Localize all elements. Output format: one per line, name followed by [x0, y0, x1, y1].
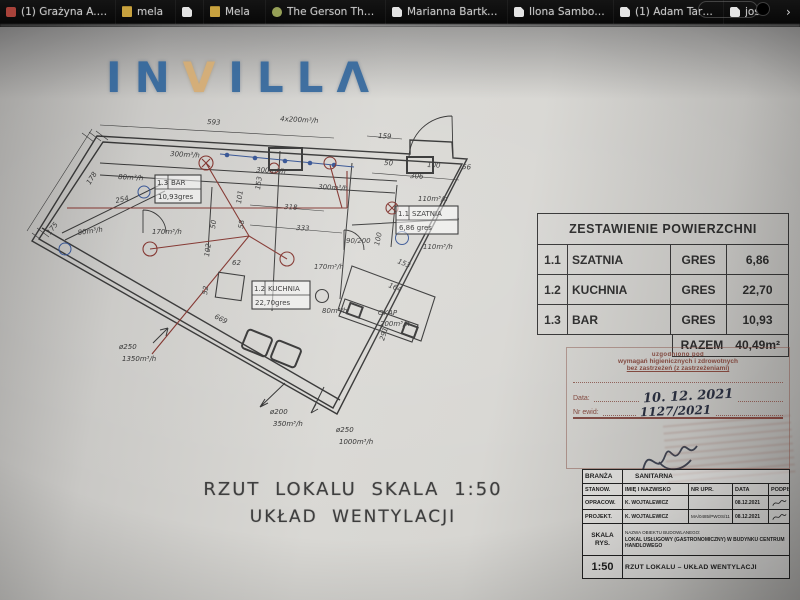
plan-label: 306 — [410, 172, 424, 181]
tab-favicon-red — [6, 7, 16, 17]
room-box-text: 1.2 — [254, 285, 265, 293]
plan-label: 100 — [427, 161, 441, 170]
plan-label: 62 — [232, 259, 241, 267]
title-block-row: PROJEKT. K. WOJTALEWICZ MA/0485/PWOS/11 … — [583, 510, 789, 524]
browser-tab[interactable] — [176, 0, 204, 24]
person-name: K. WOJTALEWICZ — [623, 510, 689, 523]
person-name: K. WOJTALEWICZ — [623, 496, 689, 509]
plan-label: 170m³/h — [314, 263, 344, 271]
col-podpis: PODPIS — [769, 484, 789, 495]
plan-label: ø200 — [269, 408, 288, 416]
plan-label: 300m³/h — [170, 150, 200, 160]
col-name: IMIĘ I NAZWISKO — [623, 484, 689, 495]
stamp-date-row: Data: 10. 12. 2021 — [573, 389, 783, 402]
col-data: DATA — [733, 484, 769, 495]
object-cell: NAZWA OBIEKTU BUDOWLANEGO: LOKAL USŁUGOW… — [623, 524, 789, 555]
signature-mini — [771, 512, 787, 522]
plan-label: 52 — [201, 285, 210, 295]
plan-label: 1350m³/h — [122, 355, 156, 363]
plan-label: 350m³/h — [273, 420, 303, 428]
room-box: 1.2KUCHNIA22,70gres — [252, 281, 310, 309]
tab-label: mela — [137, 6, 163, 18]
area-table-title: ZESTAWIENIE POWIERZCHNI — [538, 214, 788, 245]
upr-number — [689, 496, 733, 509]
room-number: 1.2 — [538, 275, 568, 304]
tab-label: (1) Grażyna A. Ada... — [21, 6, 109, 18]
plan-label: 110m³/h — [423, 243, 453, 251]
tab-favicon-apple — [272, 7, 282, 17]
signature-cell — [769, 510, 789, 523]
plan-label: 80m³/h — [77, 226, 103, 237]
plan-label: 333 — [296, 224, 310, 233]
plan-label: 669 — [213, 313, 229, 326]
browser-tab[interactable]: Mela — [204, 0, 266, 24]
room-name: SZATNIA — [568, 253, 670, 267]
branza-value: SANITARNA — [623, 470, 789, 483]
plan-label: 175 — [45, 220, 60, 236]
title-block-row: SKALA RYS. NAZWA OBIEKTU BUDOWLANEGO: LO… — [583, 524, 789, 556]
plan-label: 153 — [254, 176, 264, 190]
tab-favicon-page — [620, 7, 630, 17]
room-area: 22,70 — [726, 275, 788, 304]
browser-tab[interactable]: The Gerson Therap... — [266, 0, 386, 24]
room-name: BAR — [568, 313, 670, 327]
room-finish: GRES — [670, 305, 726, 334]
approval-stamp: uzgodniono pod wymagań higienicznych i z… — [566, 347, 790, 469]
room-finish: GRES — [670, 245, 726, 274]
drawing-title: RZUT LOKALU SKALA 1:50 UKŁAD WENTYLACJI — [168, 479, 538, 527]
browser-tab-bar: (1) Grażyna A. Ada... mela Mela The Gers… — [0, 0, 800, 24]
plan-label: 300m³/h — [256, 166, 286, 176]
scale-value: 1:50 — [583, 556, 623, 578]
photographed-screen: (1) Grażyna A. Ada... mela Mela The Gers… — [0, 0, 800, 600]
outer-walls — [32, 136, 467, 414]
drawing-title-line1: RZUT LOKALU SKALA 1:50 — [168, 479, 538, 500]
object-label: NAZWA OBIEKTU BUDOWLANEGO: — [625, 530, 700, 535]
room-area: 10,93 — [726, 305, 788, 334]
role: PROJEKT. — [583, 510, 623, 523]
plan-label: 178 — [85, 170, 99, 186]
area-table: ZESTAWIENIE POWIERZCHNI 1.1 SZATNIA GRES… — [537, 213, 789, 335]
area-summary-panel: ZESTAWIENIE POWIERZCHNI 1.1 SZATNIA GRES… — [537, 213, 789, 357]
dotted-line — [603, 415, 637, 416]
scale-label: SKALA RYS. — [583, 524, 623, 555]
title-block-row: 1:50 RZUT LOKALU – UKŁAD WENTYLACJI — [583, 556, 789, 578]
drawing-name: RZUT LOKALU – UKŁAD WENTYLACJI — [623, 556, 789, 578]
plan-label: 110m³/h — [418, 195, 448, 203]
browser-pill-outline — [698, 1, 758, 18]
plan-label: 58 — [237, 219, 246, 229]
title-block: BRANŻA SANITARNA STANOW. IMIĘ I NAZWISKO… — [582, 469, 790, 579]
room-box-text: 1.1 — [398, 210, 409, 218]
signature-mini — [771, 498, 787, 508]
tab-overflow-chevron[interactable]: › — [780, 5, 797, 19]
room-box: 1.1SZATNIA6,86 gres — [396, 206, 458, 234]
plan-label: 56 — [462, 163, 472, 171]
plan-label: 80m³/h — [118, 173, 144, 182]
table-row: 1.3 BAR GRES 10,93 — [538, 305, 788, 334]
logo-text: IN — [106, 53, 183, 102]
plan-label: 50 — [209, 219, 218, 229]
browser-tab[interactable]: Ilona Samborska — [508, 0, 614, 24]
tab-favicon-folder — [210, 7, 220, 17]
stamp-line: wymagań higienicznych i zdrowotnych — [573, 358, 783, 365]
table-row: 1.1 SZATNIA GRES 6,86 — [538, 245, 788, 275]
plan-label: 90/200 — [346, 237, 371, 245]
invilla-logo: INVILLΛ — [106, 53, 382, 102]
dotted-line — [738, 401, 783, 402]
plan-label: ø250 — [335, 426, 354, 434]
tab-label: Ilona Samborska — [529, 6, 607, 18]
plan-label: 102 — [203, 242, 213, 257]
room-name: KUCHNIA — [568, 283, 670, 297]
stamp-divider — [573, 372, 783, 383]
handwritten-number: 1127/2021 — [640, 403, 712, 419]
room-number: 1.1 — [538, 245, 568, 274]
browser-tab[interactable]: mela — [116, 0, 176, 24]
plan-label: ø250 — [118, 343, 137, 351]
room-number: 1.3 — [538, 305, 568, 334]
branza-label: BRANŻA — [583, 470, 623, 483]
stamp-line: bez zastrzeżeń (z zastrzeżeniami) — [573, 365, 783, 372]
logo-v: V — [183, 53, 229, 102]
room-box-text: 6,86 gres — [399, 224, 432, 232]
tab-label: Marianna Bartke Th... — [407, 6, 501, 18]
drawing-title-line2: UKŁAD WENTYLACJI — [168, 507, 538, 527]
plan-label: 593 — [207, 118, 221, 127]
room-box-text: BAR — [171, 179, 186, 187]
title-block-row: BRANŻA SANITARNA — [583, 470, 789, 484]
browser-tab[interactable]: (1) Grażyna A. Ada... — [0, 0, 116, 24]
tab-favicon-page — [182, 7, 192, 17]
role: OPRACOW. — [583, 496, 623, 509]
room-area: 6,86 — [726, 245, 788, 274]
plan-label: 80m³/h — [322, 307, 347, 315]
plan-label: 254 — [115, 194, 130, 205]
plan-label: OKAP — [378, 309, 398, 317]
stamp-evid-label: Nr ewid: — [573, 409, 599, 416]
upr-number: MA/0485/PWOS/11 — [689, 510, 733, 523]
stamp-date-label: Data: — [573, 395, 590, 402]
exhaust-ducts — [67, 156, 398, 354]
scanned-drawing-sheet: INVILLΛ — [0, 27, 800, 600]
tab-favicon-page — [514, 7, 524, 17]
plan-label: 100 — [373, 231, 384, 246]
plan-label: 50 — [384, 159, 394, 167]
browser-tab[interactable]: Marianna Bartke Th... — [386, 0, 508, 24]
room-box: 1.3BAR10,93gres — [155, 175, 201, 203]
object-value: LOKAL USŁUGOWY (GASTRONOMICZNY) W BUDYNK… — [625, 537, 787, 549]
date: 08.12.2021 — [733, 510, 769, 523]
plan-label: 200m³/h — [380, 320, 410, 328]
tab-favicon-folder — [122, 7, 132, 17]
plan-label: 4x200m³/h — [280, 115, 319, 125]
plan-label: 101 — [235, 190, 245, 204]
room-box-text: KUCHNIA — [268, 285, 300, 293]
room-finish: GRES — [670, 275, 726, 304]
tab-label: The Gerson Therap... — [287, 6, 379, 18]
table-row: 1.2 KUCHNIA GRES 22,70 — [538, 275, 788, 305]
date: 08.12.2021 — [733, 496, 769, 509]
room-box-text: 1.3 — [157, 179, 168, 187]
plan-label: 300m³/h — [318, 183, 348, 193]
plan-label: 170m³/h — [152, 228, 182, 236]
room-box-text: 10,93gres — [158, 193, 194, 201]
room-box-text: SZATNIA — [412, 210, 442, 218]
browser-profile-dot — [756, 2, 770, 16]
dotted-line — [594, 401, 639, 402]
plan-label: 318 — [284, 203, 298, 212]
col-stanow: STANOW. — [583, 484, 623, 495]
title-block-header-row: STANOW. IMIĘ I NAZWISKO NR UPR. DATA POD… — [583, 484, 789, 496]
tab-label: Mela — [225, 6, 250, 18]
plan-label: 1000m³/h — [339, 438, 373, 446]
floor-plan-svg: 1.3BAR10,93gres1.2KUCHNIA22,70gres1.1SZA… — [22, 111, 537, 471]
title-block-row: OPRACOW. K. WOJTALEWICZ 08.12.2021 — [583, 496, 789, 510]
plan-label: 159 — [378, 132, 392, 141]
room-box-text: 22,70gres — [255, 299, 291, 307]
tab-favicon-page — [392, 7, 402, 17]
signature-cell — [769, 496, 789, 509]
col-upr: NR UPR. — [689, 484, 733, 495]
plan-label: 153 — [396, 257, 411, 269]
logo-text: ILLΛ — [228, 53, 382, 102]
